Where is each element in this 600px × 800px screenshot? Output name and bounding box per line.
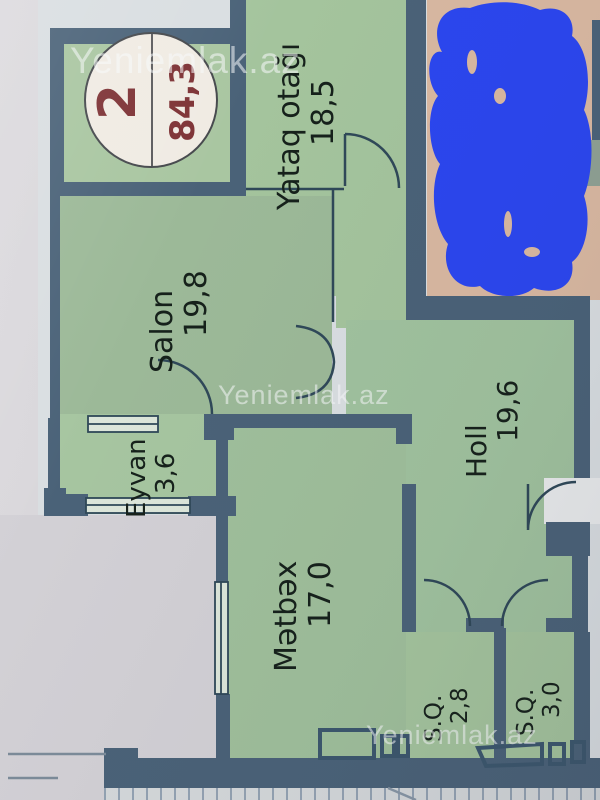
stair-diagonal [388,788,416,800]
door-arc-sq-30 [502,580,548,626]
room-area: 19,8 [180,270,214,337]
room-label-metbex: Mətbəx 17,0 [268,492,340,672]
room-label-yataq: Yataq otağı 18,5 [270,0,344,210]
room-name: Eyvan [123,438,152,518]
room-area: 3,6 [152,453,181,494]
watermark-bottom: Yeniemlak.az [366,720,538,751]
room-area: 18,5 [307,79,341,146]
watermark-top: Yeniemlak.az [70,40,301,82]
room-area: 2,8 [448,687,474,724]
room-area: 17,0 [304,561,338,628]
door-arc-sq-28 [424,580,470,626]
room-name: Salon [146,290,180,373]
room-label-eyvan: Eyvan 3,6 [121,398,183,518]
pen-scribble [429,2,591,296]
fixture-sq-small [550,744,564,764]
room-label-salon: Salon 19,8 [145,223,215,373]
room-name: Holl [461,424,492,478]
room-area: 19,6 [492,380,523,442]
floorplan-photo: 2 84,3 Yataq otağı 18,5 Salon 19,8 Holl … [0,0,600,800]
fixture-sq-small [572,742,584,762]
watermark-middle: Yeniemlak.az [218,380,390,411]
room-label-holl: Holl 19,6 [459,338,525,478]
door-arc-yataq [345,134,399,188]
room-name: Mətbəx [270,561,304,672]
room-area: 3,0 [540,681,566,718]
door-arc-entrance [528,482,576,530]
